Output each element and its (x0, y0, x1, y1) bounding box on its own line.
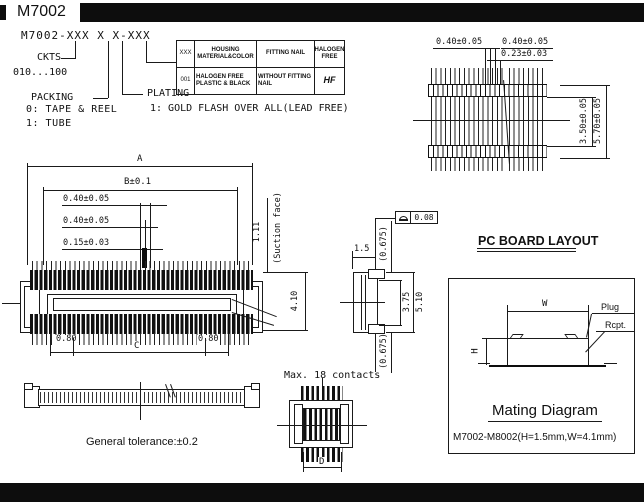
front-dim-end-right: 0.80 (197, 335, 219, 345)
dim-line (391, 332, 392, 373)
packing-label: PACKING (31, 92, 73, 104)
center-line (340, 302, 385, 303)
underline (596, 331, 634, 332)
callout-line (75, 41, 76, 58)
pcb-dim-pad-left: 0.40±0.05 (436, 38, 482, 48)
ext-line (386, 332, 415, 333)
col-header-housing: HOUSING MATERIAL&COLOR (195, 41, 257, 68)
col-header-code: XXX (177, 41, 195, 68)
callout-line (61, 58, 76, 59)
ext-line (27, 163, 28, 265)
dim-line (501, 48, 553, 49)
profile-tolerance-value: 0.08 (411, 211, 438, 224)
page-title: M7002 (17, 3, 66, 21)
packing-option-0: 0: TAPE & REEL (26, 104, 117, 116)
dim-line (487, 60, 553, 61)
dim-line (43, 190, 238, 191)
ext-line (560, 85, 610, 86)
ext-line (303, 452, 304, 472)
front-dim-height: 4.10 (291, 291, 300, 311)
ext-line (560, 158, 610, 159)
mating-slot-inner (53, 298, 231, 311)
mated-bracket-left (294, 404, 303, 444)
ext-line (140, 203, 141, 268)
front-dim-c: C (133, 341, 140, 351)
center-line (2, 303, 20, 304)
plug-label: Plug (601, 302, 619, 312)
mating-diagram-title: Mating Diagram (492, 402, 598, 419)
ext-line (379, 280, 402, 281)
pcb-dim-span-inner: 3.50±0.05 (580, 98, 589, 144)
cell-fitting: WITHOUT FITTING NAIL (257, 68, 315, 94)
strip-end-step-left (24, 383, 33, 390)
options-table: XXX HOUSING MATERIAL&COLOR FITTING NAIL … (176, 40, 345, 95)
ext-line (263, 272, 308, 273)
front-dim-p1: 0.40±0.05 (63, 195, 109, 205)
general-tolerance-note: General tolerance:±0.2 (86, 436, 198, 449)
board-line-end (478, 363, 490, 364)
underline (477, 251, 576, 252)
side-dim-bottom: (0.675) (380, 333, 389, 369)
ckts-label: CKTS (37, 52, 61, 64)
ext-line (150, 203, 151, 268)
board-line (489, 365, 606, 367)
plug-wall (588, 311, 589, 366)
contact-strip-teeth (40, 392, 243, 403)
callout-line (122, 41, 123, 94)
pcb-dim-span-outer: 5.70±0.05 (594, 98, 603, 144)
halogen-free-icon: HF (315, 68, 344, 94)
leader-line (375, 218, 395, 219)
front-dim-a: A (136, 154, 143, 164)
ckts-range: 010...100 (13, 67, 67, 79)
ext-line (73, 338, 74, 356)
ext-line (237, 187, 238, 265)
dim-line (391, 221, 392, 273)
side-dim-inner: 3.75 (403, 292, 412, 312)
col-header-halogen: HALOGEN FREE (315, 41, 344, 68)
ext-line (379, 325, 402, 326)
callout-line (122, 94, 143, 95)
strip-end-step-right (251, 383, 260, 390)
dim-line (62, 227, 158, 228)
contact-row-top (30, 270, 253, 290)
pcb-dim-gap: 0.23±0.03 (501, 50, 547, 60)
surface-profile-symbol-icon (395, 211, 411, 224)
mating-dim-w: W (542, 299, 547, 309)
dim-line (267, 198, 268, 272)
part-number: M7002-XXX X X-XXX (21, 30, 151, 43)
col-header-fitting: FITTING NAIL (257, 41, 315, 68)
footer-redacted-bar (0, 483, 644, 502)
mating-dim-h: H (472, 348, 481, 353)
plating-option-1: 1: GOLD FLASH OVER ALL(LEAD FREE) (150, 103, 349, 115)
pcb-pad-row-top (428, 84, 547, 97)
page-corner-mark (0, 5, 6, 20)
hf-logo-icon: HF (324, 75, 336, 86)
center-line (140, 382, 141, 420)
center-line (277, 425, 367, 426)
front-dim-p2: 0.40±0.05 (63, 217, 109, 227)
front-dim-end-left: 0.80 (55, 335, 77, 345)
dim-line (507, 311, 588, 312)
packing-option-1: 1: TUBE (26, 118, 72, 130)
ext-line (205, 338, 206, 356)
ext-line (547, 146, 596, 147)
ext-line (228, 334, 229, 356)
front-dim-p3: 0.15±0.03 (63, 239, 109, 249)
dim-line (50, 352, 228, 353)
side-dim-top: (0.675) (380, 226, 389, 262)
dim-line (62, 249, 163, 250)
callout-line (108, 41, 109, 98)
front-dim-suction: 1.11 (253, 222, 262, 242)
side-dim-outer: 5.10 (416, 292, 425, 312)
front-suction-note: (Suction face) (274, 192, 283, 264)
board-line-end (604, 363, 617, 364)
dim-line (27, 166, 253, 167)
dim-line (486, 338, 487, 365)
front-dim-b: B±0.1 (123, 177, 152, 187)
ext-line (252, 163, 253, 265)
side-dim-width: 1.5 (354, 245, 369, 255)
callout-line (146, 41, 147, 62)
callout-line (146, 62, 176, 63)
dim-line (62, 205, 167, 206)
dim-line (305, 272, 306, 330)
max-contacts-note: Max. 18 contacts (284, 370, 380, 382)
callout-line (93, 98, 108, 99)
pcb-dim-pad-right: 0.40±0.05 (502, 38, 548, 48)
ext-line (352, 251, 353, 269)
mating-note: M7002-M8002(H=1.5mm,W=4.1mm) (453, 432, 616, 444)
ext-line (263, 330, 308, 331)
datasheet-page: M7002 M7002-XXX X X-XXX CKTS 010...100 P… (0, 0, 644, 502)
pcb-pad-row-bottom (428, 145, 547, 158)
dim-line (606, 85, 607, 158)
underline (477, 248, 576, 249)
underline (592, 313, 634, 314)
ext-line (341, 452, 342, 472)
mated-dim-d: D (318, 457, 325, 467)
underline (488, 421, 602, 422)
dim-line (352, 257, 375, 258)
ext-line (386, 272, 415, 273)
side-flange-top (368, 269, 385, 279)
header-redacted-bar (80, 3, 644, 22)
mated-bracket-right (340, 404, 349, 444)
ext-line (43, 187, 44, 265)
pin-teeth-top (301, 386, 343, 401)
cell-code: 001 (177, 68, 195, 94)
pcb-layout-title: PC BOARD LAYOUT (478, 234, 598, 248)
cell-housing: HALOGEN FREE PLASTIC & BLACK (195, 68, 257, 94)
feature-control-frame: 0.08 (395, 211, 438, 224)
rcpt-label: Rcpt. (605, 320, 626, 330)
contact-row-bottom (30, 314, 253, 334)
center-line (413, 120, 570, 121)
